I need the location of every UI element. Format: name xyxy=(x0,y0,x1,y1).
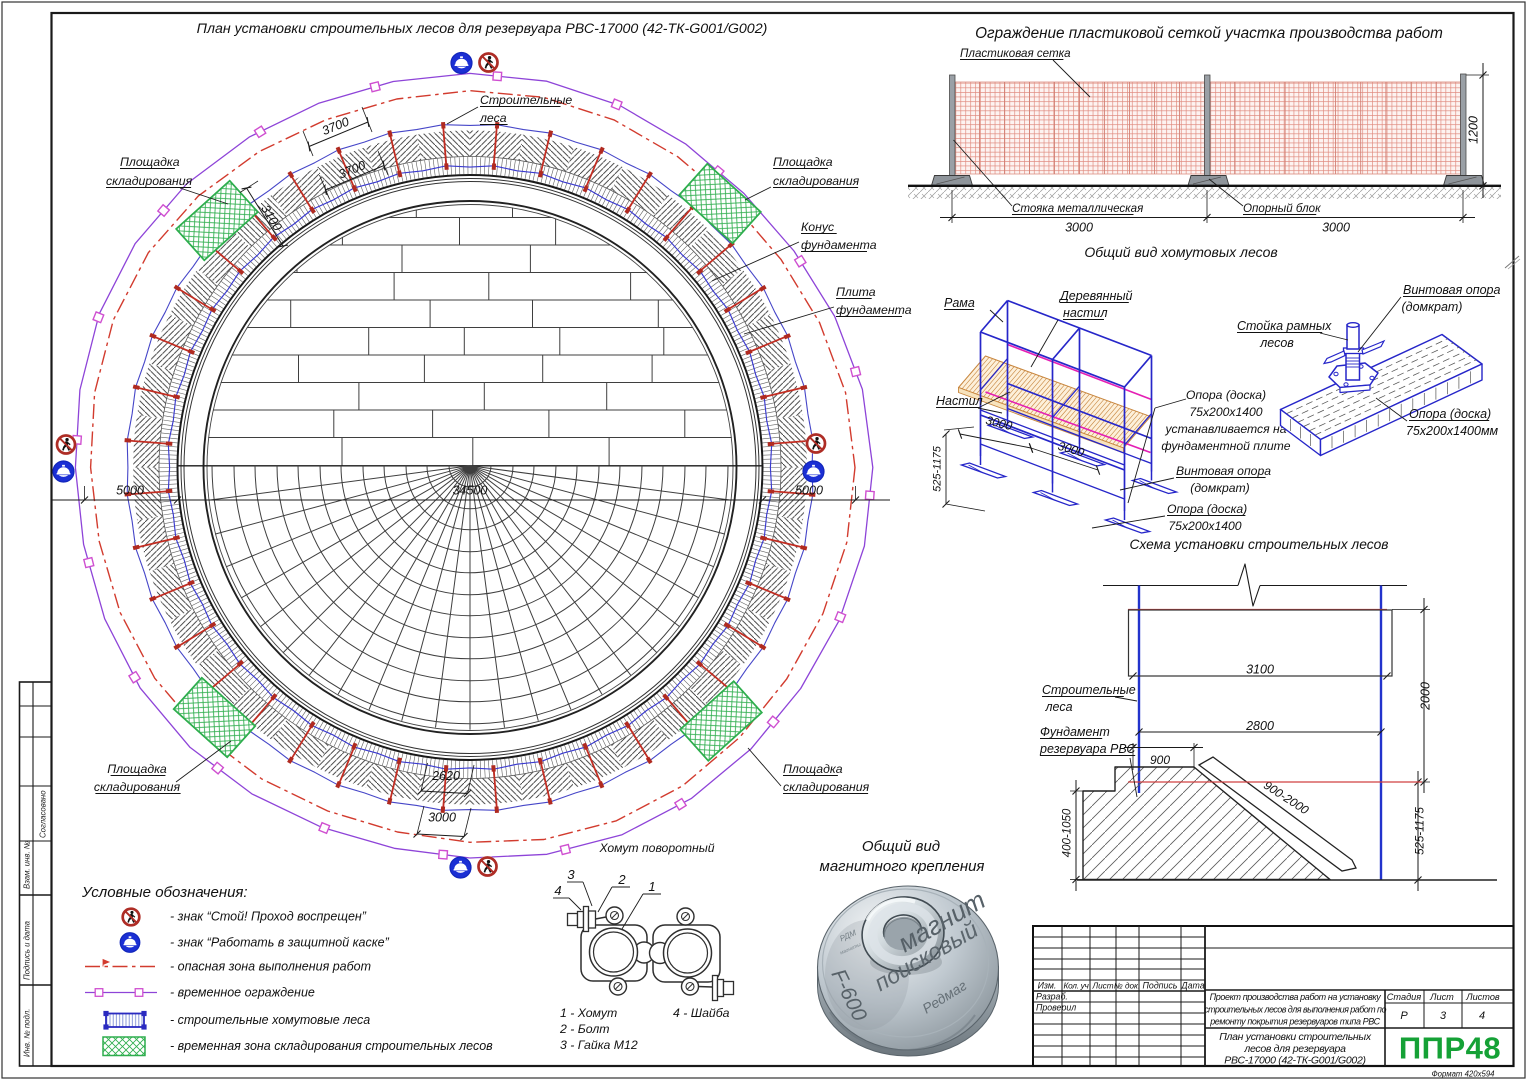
svg-text:3: 3 xyxy=(567,867,575,882)
svg-text:5000: 5000 xyxy=(795,484,823,498)
svg-text:Подпись и дата: Подпись и дата xyxy=(23,920,32,980)
svg-text:План установки строительных: План установки строительных xyxy=(1219,1031,1372,1043)
svg-text:Лист: Лист xyxy=(1429,992,1454,1002)
svg-text:Дата: Дата xyxy=(1180,981,1204,991)
svg-text:Строительные: Строительные xyxy=(1042,683,1136,697)
svg-text:леса: леса xyxy=(479,111,507,125)
svg-text:резервуара РВС: резервуара РВС xyxy=(1039,742,1136,756)
svg-text:Лист: Лист xyxy=(1091,982,1113,991)
svg-text:2800: 2800 xyxy=(1245,719,1274,733)
svg-text:Р: Р xyxy=(1400,1010,1408,1022)
svg-text:75х200х1400: 75х200х1400 xyxy=(1189,405,1262,419)
svg-text:Кол. уч: Кол. уч xyxy=(1064,981,1090,991)
svg-text:2620: 2620 xyxy=(431,769,460,783)
svg-text:Настил: Настил xyxy=(936,394,983,408)
svg-text:фундаментной плите: фундаментной плите xyxy=(1161,439,1290,453)
svg-text:- строительные хомутовые леса: - строительные хомутовые леса xyxy=(170,1013,370,1027)
svg-text:- знак “Работать в защитной ка: - знак “Работать в защитной каске” xyxy=(170,936,390,950)
svg-text:Площадка: Площадка xyxy=(783,762,843,776)
svg-text:Площадка: Площадка xyxy=(120,155,180,169)
svg-text:Опора (доска): Опора (доска) xyxy=(1409,407,1491,421)
svg-text:Стойка рамных: Стойка рамных xyxy=(1237,319,1332,333)
svg-text:- временное ограждение: - временное ограждение xyxy=(170,986,315,1000)
svg-text:складирования: складирования xyxy=(773,174,860,188)
svg-text:1 - Хомут: 1 - Хомут xyxy=(560,1006,617,1020)
svg-text:устанавливается на: устанавливается на xyxy=(1164,422,1286,436)
svg-text:Конус: Конус xyxy=(801,220,835,234)
svg-text:фундамента: фундамента xyxy=(801,238,877,252)
svg-text:складирования: складирования xyxy=(106,174,193,188)
svg-text:Изм.: Изм. xyxy=(1038,981,1057,991)
svg-text:- временная зона складирования: - временная зона складирования строитель… xyxy=(170,1039,493,1053)
svg-text:- знак “Стой! Проход воспрещен: - знак “Стой! Проход воспрещен” xyxy=(170,910,367,924)
svg-text:Взам. инв. №: Взам. инв. № xyxy=(23,841,32,889)
svg-text:Рама: Рама xyxy=(944,296,975,310)
svg-text:4 - Шайба: 4 - Шайба xyxy=(673,1006,730,1020)
svg-text:Общий вид: Общий вид xyxy=(862,838,940,855)
svg-text:3000: 3000 xyxy=(428,811,456,825)
svg-text:Стояка металлическая: Стояка металлическая xyxy=(1012,202,1143,215)
svg-text:Схема установки строительных л: Схема установки строительных лесов xyxy=(1129,537,1388,552)
svg-text:Ограждение пластиковой сеткой: Ограждение пластиковой сеткой участка пр… xyxy=(975,25,1443,42)
svg-text:Деревянный: Деревянный xyxy=(1058,289,1133,303)
svg-text:Подпись: Подпись xyxy=(1143,981,1178,991)
svg-text:Плита: Плита xyxy=(836,285,876,299)
svg-text:лесов: лесов xyxy=(1259,336,1294,350)
svg-text:складирования: складирования xyxy=(94,780,181,794)
svg-text:Согласовано: Согласовано xyxy=(39,790,48,838)
svg-text:3 - Гайка М12: 3 - Гайка М12 xyxy=(560,1038,638,1052)
svg-text:400-1050: 400-1050 xyxy=(1062,808,1074,857)
svg-text:(домкрат): (домкрат) xyxy=(1190,481,1249,495)
svg-text:настил: настил xyxy=(1063,306,1108,320)
svg-text:Проект производства работ на у: Проект производства работ на установку xyxy=(1210,992,1382,1002)
svg-text:Проверил: Проверил xyxy=(1036,1003,1076,1013)
svg-text:1: 1 xyxy=(648,879,655,894)
svg-text:4: 4 xyxy=(554,883,561,898)
svg-text:Формат 420х594: Формат 420х594 xyxy=(1431,1070,1495,1079)
svg-text:3000: 3000 xyxy=(1065,221,1093,235)
svg-text:2000: 2000 xyxy=(1419,682,1433,711)
svg-text:525-1175: 525-1175 xyxy=(1415,807,1427,855)
svg-text:магнитного крепления: магнитного крепления xyxy=(820,858,985,875)
svg-text:34500: 34500 xyxy=(453,484,488,498)
svg-text:(домкрат): (домкрат) xyxy=(1402,300,1463,314)
svg-text:леса: леса xyxy=(1044,700,1072,714)
svg-text:строительных лесов для выполне: строительных лесов для выполнения работ … xyxy=(1204,1005,1386,1015)
svg-text:Строительные: Строительные xyxy=(480,93,572,107)
svg-text:75х200х1400: 75х200х1400 xyxy=(1168,519,1241,533)
svg-text:Опора (доска): Опора (доска) xyxy=(1186,388,1266,402)
svg-text:Общий вид хомутовых лесов: Общий вид хомутовых лесов xyxy=(1084,244,1277,260)
svg-text:Разраб.: Разраб. xyxy=(1036,992,1068,1002)
svg-text:РВС-17000 (42-ТК-G001/G002): РВС-17000 (42-ТК-G001/G002) xyxy=(1224,1055,1365,1067)
svg-text:5000: 5000 xyxy=(116,484,144,498)
svg-text:Фундамент: Фундамент xyxy=(1040,725,1110,739)
svg-text:3100: 3100 xyxy=(1246,663,1274,677)
svg-text:ППР48: ППР48 xyxy=(1399,1031,1501,1066)
svg-text:3000: 3000 xyxy=(1322,221,1350,235)
svg-text:4: 4 xyxy=(1479,1010,1485,1022)
svg-text:1200: 1200 xyxy=(1467,116,1481,144)
svg-text:Опора (доска): Опора (доска) xyxy=(1167,502,1247,516)
svg-text:Условные обозначения:: Условные обозначения: xyxy=(81,884,248,901)
svg-text:№ док.: № док. xyxy=(1114,982,1140,991)
svg-text:2: 2 xyxy=(617,872,626,887)
svg-text:Винтовая опора: Винтовая опора xyxy=(1403,283,1500,297)
svg-text:- опасная зона выполнения рабо: - опасная зона выполнения работ xyxy=(170,960,371,974)
svg-text:Хомут поворотный: Хомут поворотный xyxy=(598,841,714,855)
svg-text:Листов: Листов xyxy=(1465,992,1500,1002)
svg-text:складирования: складирования xyxy=(783,780,870,794)
svg-text:Стадия: Стадия xyxy=(1387,992,1421,1002)
svg-text:Опорный блок: Опорный блок xyxy=(1243,202,1321,215)
svg-text:фундамента: фундамента xyxy=(836,303,912,317)
svg-text:900: 900 xyxy=(1150,753,1170,767)
svg-text:Площадка: Площадка xyxy=(773,155,833,169)
svg-text:3: 3 xyxy=(1440,1010,1447,1022)
svg-text:525-1175: 525-1175 xyxy=(932,445,944,492)
svg-text:План установки строительных ле: План установки строительных лесов для ре… xyxy=(197,21,768,37)
svg-text:ремонту покрытия резервуаров т: ремонту покрытия резервуаров типа РВС xyxy=(1209,1017,1380,1027)
svg-text:Инв. № подл.: Инв. № подл. xyxy=(23,1009,32,1057)
svg-text:Площадка: Площадка xyxy=(107,762,167,776)
svg-text:75х200х1400мм: 75х200х1400мм xyxy=(1406,424,1499,438)
svg-text:2 - Болт: 2 - Болт xyxy=(559,1022,610,1036)
svg-text:Пластиковая сетка: Пластиковая сетка xyxy=(960,47,1071,60)
svg-text:Винтовая опора: Винтовая опора xyxy=(1176,464,1271,478)
svg-text:лесов для резервуара: лесов для резервуара xyxy=(1243,1043,1346,1055)
